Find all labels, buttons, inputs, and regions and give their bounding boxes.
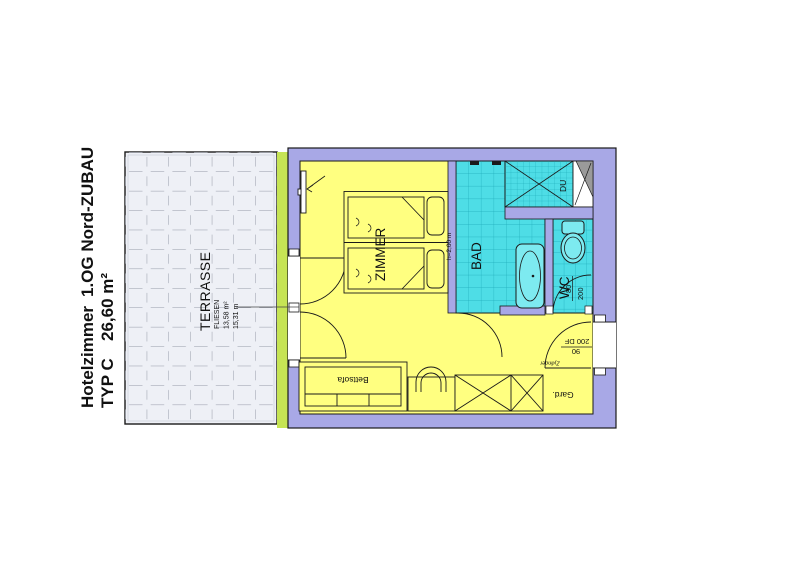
title-location: 1.OG Nord-ZUBAU [78,147,97,297]
title-type: TYP C [98,358,117,408]
title-area: 26,60 m² [98,273,117,341]
wall-tab-1 [470,161,479,165]
terrace-perimeter-label: 15,31 m [233,304,240,329]
bad-label: BAD [469,242,484,270]
floor-plan-page: Hotelzimmer 1.OG Nord-ZUBAU TYP C 26,60 … [0,0,800,566]
terrace-name-label: TERRASSE [197,252,213,331]
wall-bad-wc [545,219,553,313]
zimmer-label: ZIMMER [373,228,388,281]
bed-height-label: h=2,00 m [446,233,453,260]
insulation-strip [277,152,288,428]
bathtub [516,244,544,308]
sofa-label: Bettsofa [337,375,368,385]
wc-door-height-label: 200 [576,287,585,300]
wardrobe [455,375,543,411]
terrace-material-label: FLIESEN [214,300,221,329]
wall-tab-2 [492,161,501,165]
entry-door-height-label: 200 DF [564,337,589,346]
title-project: Hotelzimmer [78,306,97,408]
plan-title: Hotelzimmer 1.OG Nord-ZUBAU TYP C 26,60 … [78,147,117,408]
sofa-bettsofa [299,362,407,411]
desk-table [408,377,455,411]
toilet [561,221,585,263]
entry-door-width-label: 90 [572,347,580,356]
wc-door-width-label: 80 [564,285,573,293]
du-label: DU [558,180,568,192]
floor-plan-svg: Hotelzimmer 1.OG Nord-ZUBAU TYP C 26,60 … [0,0,800,566]
wardrobe-label: Gard. [552,390,573,400]
wall-under-shower [505,207,593,219]
double-bed [344,192,448,294]
shaft [573,161,593,207]
terrace-area-label: 13,58 m² [224,301,231,329]
entry-lock-label: Zylinder [539,360,561,366]
